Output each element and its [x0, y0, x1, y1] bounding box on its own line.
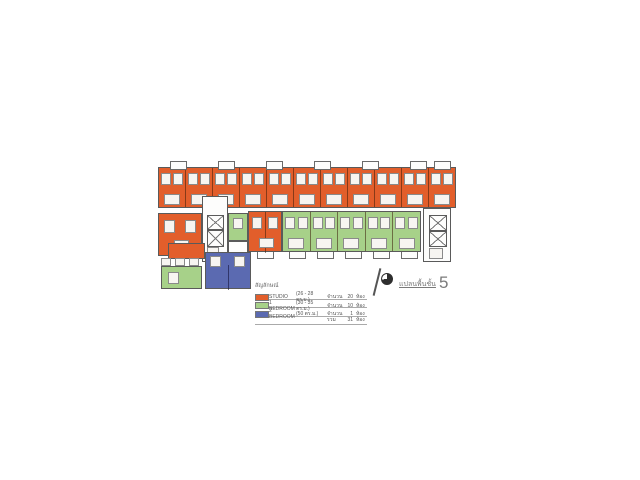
bed-icon: [308, 173, 318, 185]
unit-module: [283, 212, 311, 251]
unit-module: [402, 168, 429, 207]
legend-size: (50 ตร.ม.): [296, 311, 327, 317]
floor-number: 5: [439, 276, 448, 290]
legend-swatch: [255, 311, 269, 318]
table-icon: [343, 238, 359, 249]
unit-module: [311, 212, 339, 251]
table-icon: [380, 194, 396, 205]
bed-icon: [188, 173, 198, 185]
table-icon: [164, 194, 180, 205]
legend-unit-label: ห้อง: [353, 303, 365, 309]
unit-module: [338, 212, 366, 251]
unit-divider: [228, 265, 229, 290]
legend-qty-label: จำนวน: [327, 311, 343, 317]
bed-icon: [335, 173, 345, 185]
table-icon: [407, 194, 423, 205]
table-icon: [399, 238, 415, 249]
bed-icon: [323, 173, 333, 185]
bed-icon: [173, 173, 183, 185]
bed-icon: [185, 220, 196, 233]
north-needle-icon: [373, 268, 382, 296]
bed-icon: [296, 173, 306, 185]
legend-qty-label: จำนวน: [327, 294, 343, 300]
unit-module: [294, 168, 321, 207]
table-icon: [245, 194, 261, 205]
bed-icon: [362, 173, 372, 185]
table-icon: [288, 238, 304, 249]
bed-icon: [353, 217, 363, 229]
bed-icon: [215, 173, 225, 185]
bed-icon: [164, 220, 175, 233]
balcony: [314, 161, 331, 170]
table-icon: [316, 238, 332, 249]
legend-total-unit: ห้อง: [353, 317, 365, 323]
legend-qty-label: จำนวน: [327, 303, 343, 309]
corridor-fixture: [175, 258, 185, 266]
table-icon: [272, 194, 288, 205]
lift-shaft-icon: [429, 215, 447, 231]
north-arrow-icon: [381, 273, 393, 285]
bed-icon: [380, 217, 390, 229]
unit-module: [267, 168, 294, 207]
unit-module: [375, 168, 402, 207]
balcony: [170, 161, 187, 170]
bed-icon: [210, 256, 221, 267]
legend-row: 1 BEDROOM(30 - 35 ตร.ม.)จำนวน10ห้อง: [255, 300, 367, 309]
legend-qty: 10: [343, 303, 353, 309]
floor-plan-sheet: สัญลักษณ์ STUDIO(26 - 28 ตร.ม.)จำนวน20ห้…: [0, 0, 640, 480]
bed-icon: [404, 173, 414, 185]
legend-swatch: [255, 294, 269, 301]
bed-icon: [254, 173, 264, 185]
bed-icon: [416, 173, 426, 185]
bed-icon: [313, 217, 323, 229]
bed-icon: [200, 173, 210, 185]
bed-icon: [281, 173, 291, 185]
lift-shaft-icon: [429, 231, 447, 247]
table-icon: [326, 194, 342, 205]
bed-icon: [252, 217, 262, 229]
bed-icon: [234, 256, 245, 267]
bed-icon: [242, 173, 252, 185]
legend: สัญลักษณ์ STUDIO(26 - 28 ตร.ม.)จำนวน20ห้…: [255, 283, 367, 325]
bed-icon: [285, 217, 295, 229]
unit-module: [159, 168, 186, 207]
bed-icon: [395, 217, 405, 229]
sheet-title-label: แปลนพื้นชั้น: [399, 279, 436, 290]
table-icon: [371, 238, 387, 249]
lift-shaft-icon: [207, 215, 224, 230]
one-bedroom-unit: [228, 213, 248, 241]
legend-qty: 1: [343, 311, 353, 317]
balcony: [434, 161, 451, 170]
legend-row: STUDIO(26 - 28 ตร.ม.)จำนวน20ห้อง: [255, 291, 367, 300]
unit-module: [348, 168, 375, 207]
studio-unit-small: [168, 243, 205, 259]
bed-icon: [168, 272, 179, 284]
balcony: [218, 161, 235, 170]
table-icon: [434, 194, 450, 205]
one-bedroom-unit: [161, 266, 202, 289]
legend-size: (30 - 35 ตร.ม.): [296, 300, 327, 312]
corridor-fixture: [189, 258, 199, 266]
balcony: [362, 161, 379, 170]
stair-icon: [207, 230, 224, 247]
legend-swatch: [255, 302, 269, 309]
bed-icon: [325, 217, 335, 229]
balcony: [266, 161, 283, 170]
lobby-icon: [429, 248, 443, 259]
bed-icon: [268, 217, 278, 229]
bed-icon: [227, 173, 237, 185]
bed-icon: [431, 173, 441, 185]
balcony: [410, 161, 427, 170]
two-bedroom-unit: [205, 252, 251, 289]
bed-icon: [161, 173, 171, 185]
bed-icon: [408, 217, 418, 229]
unit-module: [393, 212, 420, 251]
unit-module: [429, 168, 455, 207]
service-core-right: [423, 208, 451, 262]
sheet-title: แปลนพื้นชั้น 5: [399, 276, 448, 290]
bed-icon: [389, 173, 399, 185]
bed-icon: [368, 217, 378, 229]
legend-qty: 20: [343, 294, 353, 300]
bed-icon: [269, 173, 279, 185]
legend-type: 2 BEDROOM: [269, 308, 296, 320]
legend-total-label: รวม: [327, 317, 343, 323]
corridor-fixture: [161, 258, 171, 266]
table-icon: [259, 238, 274, 248]
bed-icon: [233, 218, 243, 229]
bed-icon: [350, 173, 360, 185]
legend-rows: STUDIO(26 - 28 ตร.ม.)จำนวน20ห้อง1 BEDROO…: [255, 291, 367, 317]
bed-icon: [377, 173, 387, 185]
unit-module: [240, 168, 267, 207]
bed-icon: [340, 217, 350, 229]
bed-icon: [443, 173, 453, 185]
table-icon: [353, 194, 369, 205]
unit-module: [321, 168, 348, 207]
one-bedroom-band: [282, 211, 421, 252]
legend-unit-label: ห้อง: [353, 294, 365, 300]
legend-total-qty: 31: [343, 317, 353, 323]
table-icon: [299, 194, 315, 205]
unit-module: [366, 212, 394, 251]
legend-title: สัญลักษณ์: [255, 283, 367, 289]
studio-pair: [248, 211, 282, 252]
bed-icon: [298, 217, 308, 229]
